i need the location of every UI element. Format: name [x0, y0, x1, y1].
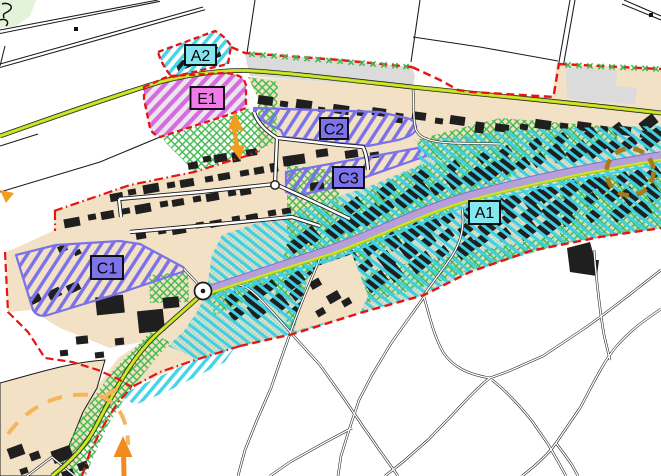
svg-text:C2: C2 — [324, 122, 345, 139]
svg-text:A2: A2 — [191, 48, 211, 65]
svg-text:C1: C1 — [97, 261, 118, 278]
svg-text:E1: E1 — [197, 91, 217, 108]
svg-text:A1: A1 — [475, 205, 495, 222]
svg-text:C3: C3 — [338, 171, 359, 188]
